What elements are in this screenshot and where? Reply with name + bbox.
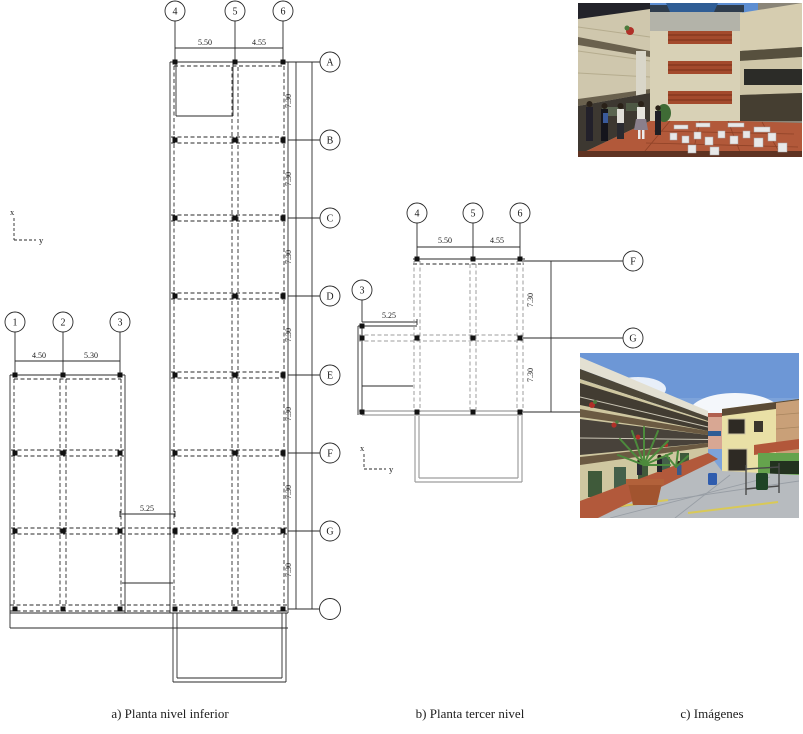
caption-plan-b: b) Planta tercer nivel: [416, 706, 525, 722]
plan-a-axis-labels: x y: [10, 207, 44, 245]
plan-b-axis-marker: [364, 454, 386, 469]
grid-label-4: 4: [173, 7, 178, 18]
grid-label-6: 6: [518, 209, 523, 220]
dim-7-30: 7.30: [284, 328, 293, 342]
grid-bubble-blank: [320, 599, 341, 620]
plan-b-gray-solid-lines: [358, 411, 523, 482]
grid-label-2: 2: [61, 318, 66, 329]
blue-barrel: [708, 473, 717, 485]
dim-7-30: 7.30: [284, 563, 293, 577]
axis-y-label: y: [39, 235, 44, 245]
grid-label-C: C: [327, 214, 334, 225]
photo-courtyard-interior: [578, 3, 802, 157]
dim-7-30: 7.30: [526, 368, 535, 382]
plan-a-columns: [13, 60, 286, 612]
dim-5-50: 5.50: [198, 38, 212, 47]
grid-label-G: G: [629, 334, 636, 345]
dim-5-25: 5.25: [140, 504, 154, 513]
plan-b-grid-labels: 4 5 6 3 F G: [360, 209, 637, 345]
axis-x-label: x: [10, 207, 15, 217]
plan-a-solid-lines: [10, 21, 320, 682]
dim-7-30: 7.30: [284, 250, 293, 264]
plan-a-grid-bubbles: [5, 1, 341, 620]
plan-a-grid-labels: 4 5 6 1 2 3 A B C D E F G: [13, 7, 335, 538]
plan-a-dashed-slab-lines: [10, 66, 287, 611]
dim-4-50: 4.50: [32, 351, 46, 360]
dim-5-25: 5.25: [382, 311, 396, 320]
dim-5-30: 5.30: [84, 351, 98, 360]
figure-canvas: 4 5 6 1 2 3 A B C D E F G 5.50 4.55 4.50…: [0, 0, 803, 734]
plan-b-dimensions: 5.50 4.55 5.25 7.30 7.30: [382, 236, 535, 382]
grid-label-B: B: [327, 136, 334, 147]
grid-label-1: 1: [13, 318, 18, 329]
grid-label-5: 5: [233, 7, 238, 18]
grid-label-F: F: [327, 449, 333, 460]
dim-7-30: 7.30: [526, 293, 535, 307]
grid-label-F: F: [630, 257, 636, 268]
dim-7-30: 7.30: [284, 172, 293, 186]
dim-5-50: 5.50: [438, 236, 452, 245]
grid-label-4: 4: [415, 209, 420, 220]
dim-7-30: 7.30: [284, 94, 293, 108]
dim-4-55: 4.55: [490, 236, 504, 245]
caption-plan-a: a) Planta nivel inferior: [111, 706, 228, 722]
grid-label-6: 6: [281, 7, 286, 18]
grid-label-5: 5: [471, 209, 476, 220]
axis-x-label: x: [360, 443, 365, 453]
back-building: [648, 3, 744, 121]
right-building: [740, 3, 802, 121]
grid-label-G: G: [326, 527, 333, 538]
dim-7-30: 7.30: [284, 485, 293, 499]
grid-label-E: E: [327, 371, 333, 382]
grid-label-D: D: [326, 292, 333, 303]
dim-7-30: 7.30: [284, 407, 293, 421]
grid-label-A: A: [326, 58, 334, 69]
plan-b-gray-dashed-lines: [358, 261, 523, 412]
dim-4-55: 4.55: [252, 38, 266, 47]
axis-y-label: y: [389, 464, 394, 474]
grid-label-3: 3: [360, 286, 365, 297]
plan-a-axis-marker: [14, 218, 36, 240]
plan-a-dimensions: 5.50 4.55 4.50 5.30 5.25 7.30 7.30 7.30 …: [32, 38, 293, 577]
photo-courtyard-exterior: [580, 353, 799, 518]
caption-images: c) Imágenes: [680, 706, 743, 722]
grid-label-3: 3: [118, 318, 123, 329]
